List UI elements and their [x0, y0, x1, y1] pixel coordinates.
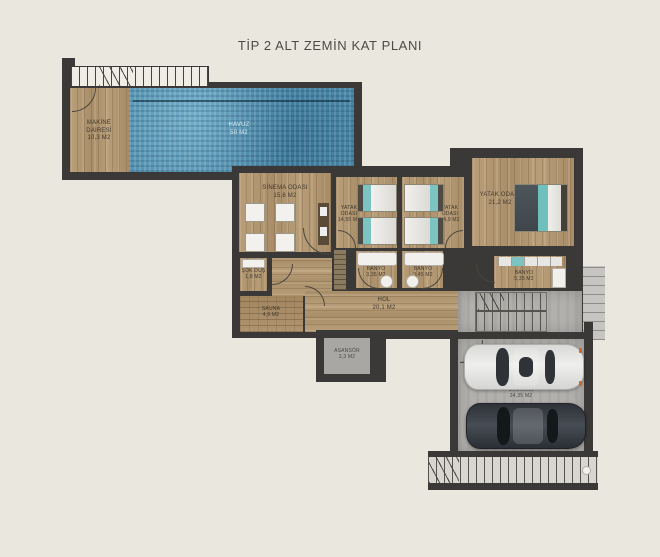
bed-duvet [405, 218, 430, 244]
room-label-machine: MAKİNE DAİRESİ10,3 M2 [76, 120, 122, 143]
bed-pillow [363, 185, 371, 211]
door-arc [445, 230, 463, 248]
door-arc [358, 268, 379, 289]
room-bedroom-1: YATAK ODASI14,55 M2 [336, 177, 397, 248]
room-bedroom-2: YATAK ODASI14,9 M2 [402, 177, 464, 248]
room-label-bath-3: BANYO5,35 M2 [504, 270, 544, 282]
double-bed [514, 184, 568, 232]
door-arc [72, 88, 96, 112]
car-white [464, 344, 584, 390]
stair-direction-line [99, 67, 133, 86]
cinema-seat [245, 203, 265, 222]
ramp-direction-line [429, 457, 459, 483]
car-taillight [579, 381, 582, 386]
vanity-counter [498, 257, 562, 266]
room-machine: MAKİNE DAİRESİ10,3 M2 [70, 88, 129, 172]
wall [62, 64, 70, 180]
cabinet-door [320, 207, 327, 216]
car-taillight [579, 348, 582, 353]
wall [370, 330, 458, 339]
cinema-seat [275, 203, 295, 222]
bed-duvet [371, 218, 396, 244]
door-arc [272, 264, 293, 285]
room-bath-1: BANYO3,35 M2 [356, 251, 397, 288]
room-shock-shower: ŞOK DUŞ1,8 M2 [240, 258, 267, 291]
towel [512, 257, 524, 266]
room-label-cinema: SİNEMA ODASI15,6 M2 [253, 185, 317, 200]
bed [404, 184, 444, 212]
bed-runner [538, 185, 548, 231]
car-rear-window [547, 409, 558, 443]
door-arc [338, 230, 356, 248]
interior-staircase [458, 291, 582, 333]
sink [406, 275, 419, 288]
car-windshield [497, 407, 510, 445]
pool-side-stairs [70, 66, 209, 87]
bed [357, 217, 397, 245]
room-label-pool: HAVUZ50 M2 [209, 122, 269, 137]
room-bath-3: BANYO5,35 M2 [494, 256, 566, 288]
cinema-seat [275, 233, 295, 252]
bed-pillows [548, 185, 561, 231]
stair-rail [476, 310, 546, 312]
door-arc [422, 268, 443, 289]
bed-duvet [371, 185, 396, 211]
room-bedroom-master: YATAK ODASI21,2 M2 [472, 158, 574, 246]
bed-pillow [363, 218, 371, 244]
wall [450, 332, 458, 453]
bed [404, 217, 444, 245]
pool-overflow-line [133, 100, 350, 102]
bed-headboard [438, 218, 443, 244]
room-label-elevator: ASANSÖR3,3 M2 [326, 348, 368, 360]
room-label-shock-shower: ŞOK DUŞ1,8 M2 [240, 268, 267, 280]
bathtub [357, 252, 397, 266]
plan-title: TİP 2 ALT ZEMİN KAT PLANI [0, 38, 660, 53]
bed-pillow [430, 218, 438, 244]
cinema-seat [245, 233, 265, 252]
wall [458, 332, 584, 339]
room-bath-2: BANYO3,45 M2 [402, 251, 443, 288]
bed-duvet [405, 185, 430, 211]
ramp-post [582, 466, 591, 475]
bed-duvet [515, 185, 538, 231]
shower-tray [242, 259, 265, 268]
wall [428, 483, 598, 490]
room-label-sauna: SAUNA4,9 M2 [254, 306, 288, 318]
bed-headboard [438, 185, 443, 211]
bed-pillow [430, 185, 438, 211]
room-hall: HOL20,1 M2 [305, 291, 458, 332]
stair-direction-line [478, 293, 504, 310]
car-rear-window [545, 350, 555, 384]
elevator: ASANSÖR3,3 M2 [324, 338, 370, 374]
sink [380, 275, 393, 288]
car-sunroof [519, 357, 533, 377]
floor-plan: TİP 2 ALT ZEMİN KAT PLANI MAKİNE DAİRESİ… [0, 0, 660, 557]
car-roof [513, 408, 543, 444]
car-windshield [496, 348, 509, 386]
closet [334, 250, 346, 290]
bed-headboard [561, 185, 567, 231]
car-dark [466, 403, 586, 449]
room-label-hall: HOL20,1 M2 [361, 297, 407, 312]
room-sauna: SAUNA4,9 M2 [240, 296, 303, 332]
bed [357, 184, 397, 212]
bathtub [404, 252, 444, 266]
swimming-pool: HAVUZ50 M2 [129, 88, 354, 172]
toilet [552, 268, 566, 288]
driveway-ramp [428, 457, 598, 483]
